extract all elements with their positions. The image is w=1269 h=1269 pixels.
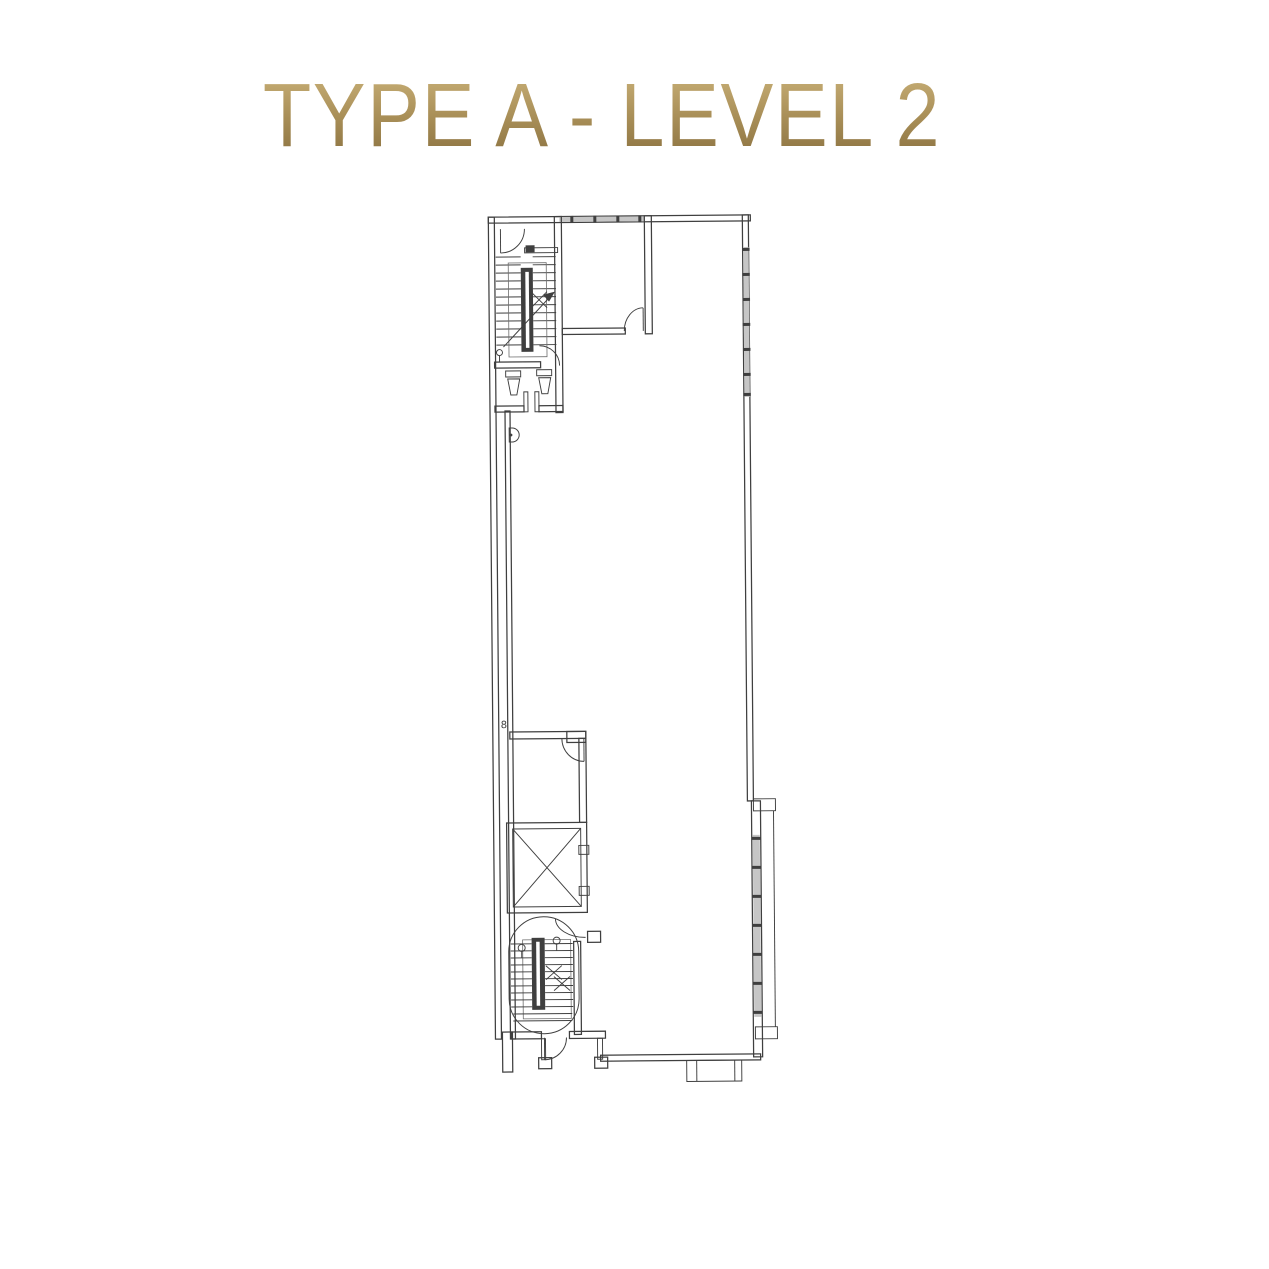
wall-annotation: 8 — [501, 720, 507, 731]
door-swing-arc — [539, 346, 559, 366]
ledge-outer-edge — [773, 811, 775, 1027]
mid-wall — [510, 731, 586, 739]
door-swing-arc — [544, 1038, 566, 1060]
stair-treads-right — [533, 257, 557, 345]
door-swing-arc — [500, 229, 524, 253]
break-cross — [531, 292, 547, 308]
porch-step — [687, 1060, 742, 1081]
lift-shaft — [507, 822, 590, 913]
newel-post — [496, 350, 502, 356]
shaft-cross — [513, 828, 582, 907]
entry-vestibule — [502, 1031, 607, 1072]
newel-post — [553, 937, 560, 944]
stair-treads-right — [545, 943, 574, 1006]
room-left-wall — [644, 216, 652, 334]
floor-plan: 8 — [0, 0, 1269, 1269]
wc-fixture-right — [537, 370, 552, 394]
stair-right-wall — [574, 941, 582, 1034]
ledge-bottom-nib — [755, 1027, 777, 1039]
page: TYPE A - LEVEL 2 — [0, 0, 1269, 1269]
left-wall — [488, 217, 501, 1039]
core-right-wall — [554, 217, 563, 413]
toilet-front-wall-right — [539, 406, 563, 412]
toilet-top-wall — [495, 362, 541, 368]
door-swing-arc — [624, 308, 643, 331]
door-jamb-nib — [588, 931, 601, 942]
store-room — [510, 731, 587, 823]
door-stop — [526, 245, 535, 252]
upper-room — [561, 216, 652, 335]
stair-treads-bottom — [513, 1013, 572, 1021]
mid-wall-cap — [567, 731, 586, 742]
room-bottom-wall — [562, 328, 625, 335]
wc-fixture-left — [506, 371, 521, 395]
store-right-wall — [579, 738, 587, 822]
door-swing-arc — [555, 918, 585, 937]
upper-staircase — [495, 217, 563, 414]
lower-staircase — [508, 916, 601, 1035]
newel-post — [518, 944, 525, 951]
toilet-room — [495, 362, 563, 413]
